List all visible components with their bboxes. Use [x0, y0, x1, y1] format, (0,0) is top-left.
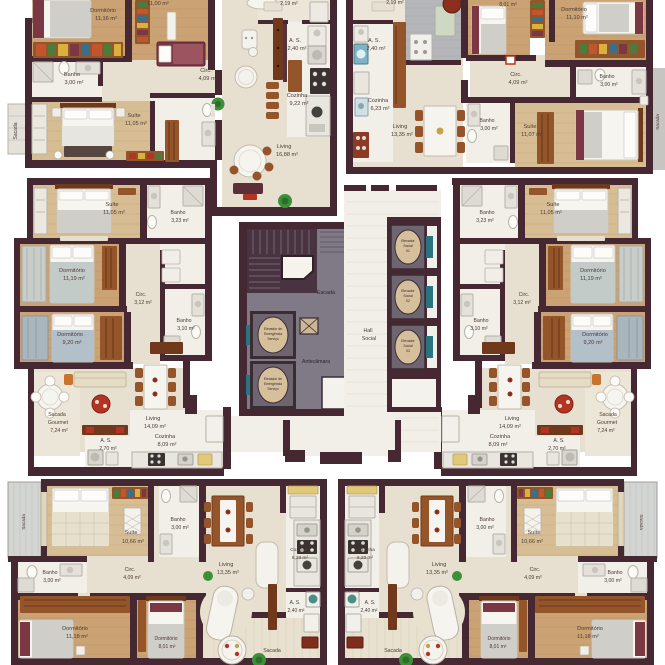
svg-text:Social: Social	[403, 244, 412, 248]
svg-text:Circ.: Circ.	[530, 567, 541, 573]
svg-text:16,88 m²: 16,88 m²	[276, 152, 298, 158]
svg-text:3,00 m²: 3,00 m²	[600, 82, 618, 88]
svg-text:Suíte: Suíte	[527, 530, 540, 536]
svg-text:Suíte: Suíte	[523, 124, 536, 130]
svg-text:Circ.: Circ.	[125, 567, 136, 573]
svg-text:8,09 m²: 8,09 m²	[158, 442, 177, 448]
svg-text:Sacada: Sacada	[655, 114, 660, 130]
svg-text:Living: Living	[219, 562, 234, 568]
svg-text:Dormitório: Dormitório	[487, 636, 510, 642]
svg-text:13,35 m²: 13,35 m²	[426, 570, 448, 576]
svg-text:2,40 m²: 2,40 m²	[367, 46, 386, 52]
svg-text:2,40 m²: 2,40 m²	[361, 608, 378, 614]
svg-text:Dormitório: Dormitório	[561, 7, 587, 13]
svg-text:Banho: Banho	[479, 517, 494, 523]
svg-text:Cozinha: Cozinha	[290, 547, 308, 553]
svg-text:11,05 m²: 11,05 m²	[103, 210, 125, 216]
svg-text:8,01 m²: 8,01 m²	[499, 2, 517, 8]
svg-text:4,09 m²: 4,09 m²	[123, 575, 141, 581]
svg-text:A. S.: A. S.	[289, 38, 302, 44]
svg-text:7,24 m²: 7,24 m²	[597, 428, 615, 434]
svg-text:14,09 m²: 14,09 m²	[144, 424, 166, 430]
svg-text:Suíte: Suíte	[105, 202, 118, 208]
svg-text:4,09 m²: 4,09 m²	[524, 575, 542, 581]
svg-text:3,00 m²: 3,00 m²	[65, 80, 84, 86]
svg-text:2,19 m²: 2,19 m²	[280, 1, 298, 7]
svg-text:Dormitório: Dormitório	[154, 636, 177, 642]
svg-text:Dormitório: Dormitório	[59, 268, 85, 274]
svg-text:Banho: Banho	[170, 517, 185, 523]
svg-text:Escada: Escada	[317, 290, 335, 296]
svg-text:Banho: Banho	[479, 210, 494, 216]
svg-text:Banho: Banho	[607, 570, 622, 576]
svg-text:2,40 m²: 2,40 m²	[288, 608, 305, 614]
svg-text:A. S.: A. S.	[365, 600, 376, 606]
svg-text:11,16 m²: 11,16 m²	[95, 16, 117, 22]
svg-text:Sacada: Sacada	[13, 122, 19, 139]
svg-text:3,00 m²: 3,00 m²	[476, 525, 494, 531]
svg-text:11,00 m²: 11,00 m²	[147, 1, 169, 7]
svg-text:Cozinha: Cozinha	[368, 98, 389, 104]
svg-text:3,00 m²: 3,00 m²	[171, 525, 189, 531]
svg-text:Dormitório: Dormitório	[57, 332, 83, 338]
svg-text:A. S.: A. S.	[368, 38, 381, 44]
svg-text:Suíte: Suíte	[124, 530, 137, 536]
svg-text:Sacada: Sacada	[21, 514, 26, 530]
svg-text:3,00 m²: 3,00 m²	[43, 578, 61, 584]
svg-text:Sacada: Sacada	[384, 648, 402, 654]
svg-text:Cozinha: Cozinha	[155, 434, 176, 440]
svg-text:Dormitório: Dormitório	[580, 268, 606, 274]
svg-text:Hall: Hall	[364, 328, 373, 334]
svg-text:Emergência: Emergência	[264, 332, 282, 336]
svg-text:Dormitório: Dormitório	[582, 332, 608, 338]
svg-text:Circ.: Circ.	[136, 292, 147, 298]
svg-text:7,24 m²: 7,24 m²	[50, 428, 68, 434]
svg-text:Dormitório: Dormitório	[90, 8, 116, 14]
svg-text:Social: Social	[403, 294, 412, 298]
svg-text:13,35 m²: 13,35 m²	[217, 570, 239, 576]
svg-text:11,19 m²: 11,19 m²	[63, 276, 85, 282]
svg-text:Living: Living	[505, 416, 520, 422]
svg-text:11,10 m²: 11,10 m²	[566, 15, 588, 21]
svg-text:Dormitório: Dormitório	[577, 626, 603, 632]
svg-text:Elevador: Elevador	[401, 339, 415, 343]
svg-text:Gourmet: Gourmet	[48, 420, 69, 426]
svg-text:Sacada: Sacada	[48, 412, 66, 418]
svg-text:2,40 m²: 2,40 m²	[288, 46, 307, 52]
svg-text:9,22 m²: 9,22 m²	[290, 101, 309, 107]
svg-text:9,20 m²: 9,20 m²	[584, 340, 603, 346]
svg-text:13,35 m²: 13,35 m²	[391, 132, 413, 138]
svg-text:14,09 m²: 14,09 m²	[499, 424, 521, 430]
svg-text:Elevador: Elevador	[401, 239, 415, 243]
svg-text:3,10 m²: 3,10 m²	[470, 326, 488, 332]
svg-text:Banho: Banho	[599, 74, 614, 80]
svg-text:Elevador de: Elevador de	[264, 377, 282, 381]
svg-text:8,01 m²: 8,01 m²	[159, 644, 176, 650]
svg-text:Antecâmara: Antecâmara	[302, 359, 330, 365]
svg-text:Banho: Banho	[170, 210, 185, 216]
svg-text:03: 03	[406, 349, 410, 353]
svg-text:Serviço: Serviço	[267, 337, 278, 341]
svg-text:Living: Living	[432, 562, 447, 568]
svg-text:9,20 m²: 9,20 m²	[63, 340, 82, 346]
svg-text:Suíte: Suíte	[127, 113, 140, 119]
svg-text:3,00 m²: 3,00 m²	[480, 126, 498, 132]
svg-text:Elevador de: Elevador de	[264, 327, 282, 331]
svg-text:11,19 m²: 11,19 m²	[580, 276, 602, 282]
svg-text:A. S.: A. S.	[290, 600, 301, 606]
svg-text:11,18 m²: 11,18 m²	[66, 634, 88, 640]
svg-text:3,12 m²: 3,12 m²	[134, 300, 152, 306]
svg-text:Cozinha: Cozinha	[490, 434, 511, 440]
svg-text:Cozinha: Cozinha	[287, 93, 308, 99]
svg-text:3,23 m²: 3,23 m²	[476, 218, 494, 224]
svg-text:Circ.: Circ.	[519, 292, 530, 298]
svg-text:01: 01	[406, 249, 410, 253]
svg-text:Suíte: Suíte	[546, 202, 559, 208]
svg-text:Sacada: Sacada	[599, 412, 617, 418]
svg-text:8,01 m²: 8,01 m²	[490, 644, 507, 650]
svg-text:10,66 m²: 10,66 m²	[521, 539, 543, 545]
svg-text:8,09 m²: 8,09 m²	[489, 442, 508, 448]
svg-text:6,23 m²: 6,23 m²	[371, 106, 390, 112]
svg-text:Serviço: Serviço	[267, 387, 278, 391]
svg-text:Banho: Banho	[176, 318, 191, 324]
svg-text:Social: Social	[403, 344, 412, 348]
svg-text:Sacada: Sacada	[639, 514, 644, 530]
svg-text:4,09 m²: 4,09 m²	[509, 80, 528, 86]
svg-text:Elevador: Elevador	[401, 289, 415, 293]
svg-text:Banho: Banho	[479, 118, 494, 124]
svg-text:Dormitório: Dormitório	[62, 626, 88, 632]
svg-text:Banho: Banho	[473, 318, 488, 324]
svg-text:6,23 m²: 6,23 m²	[357, 555, 374, 561]
svg-text:A. S.: A. S.	[100, 438, 111, 444]
svg-text:2,70 m²: 2,70 m²	[548, 446, 566, 452]
svg-text:2,19 m²: 2,19 m²	[386, 0, 404, 6]
svg-text:Cozinha: Cozinha	[357, 547, 375, 553]
svg-text:A. S.: A. S.	[553, 438, 564, 444]
svg-text:3,12 m²: 3,12 m²	[513, 300, 531, 306]
svg-text:2,70 m²: 2,70 m²	[99, 446, 117, 452]
svg-text:11,07 m²: 11,07 m²	[521, 132, 543, 138]
svg-text:Circ.: Circ.	[200, 68, 212, 74]
svg-text:6,23 m²: 6,23 m²	[292, 555, 309, 561]
svg-text:4,09 m²: 4,09 m²	[199, 76, 218, 82]
svg-text:Circ.: Circ.	[510, 72, 522, 78]
svg-text:3,10 m²: 3,10 m²	[177, 326, 195, 332]
svg-text:3,23 m²: 3,23 m²	[171, 218, 189, 224]
svg-text:Sacada: Sacada	[263, 648, 281, 654]
svg-text:02: 02	[406, 299, 410, 303]
svg-text:Gourmet: Gourmet	[597, 420, 618, 426]
svg-text:Living: Living	[393, 124, 408, 130]
svg-text:Social: Social	[362, 336, 376, 342]
svg-text:Banho: Banho	[64, 72, 80, 78]
svg-text:11,05 m²: 11,05 m²	[540, 210, 562, 216]
svg-text:11,05 m²: 11,05 m²	[125, 121, 147, 127]
svg-text:3,00 m²: 3,00 m²	[604, 578, 622, 584]
svg-text:10,66 m²: 10,66 m²	[122, 539, 144, 545]
svg-text:Banho: Banho	[42, 570, 57, 576]
svg-text:11,18 m²: 11,18 m²	[577, 634, 599, 640]
svg-text:Emergência: Emergência	[264, 382, 282, 386]
svg-text:Living: Living	[146, 416, 161, 422]
svg-text:Living: Living	[277, 144, 292, 150]
